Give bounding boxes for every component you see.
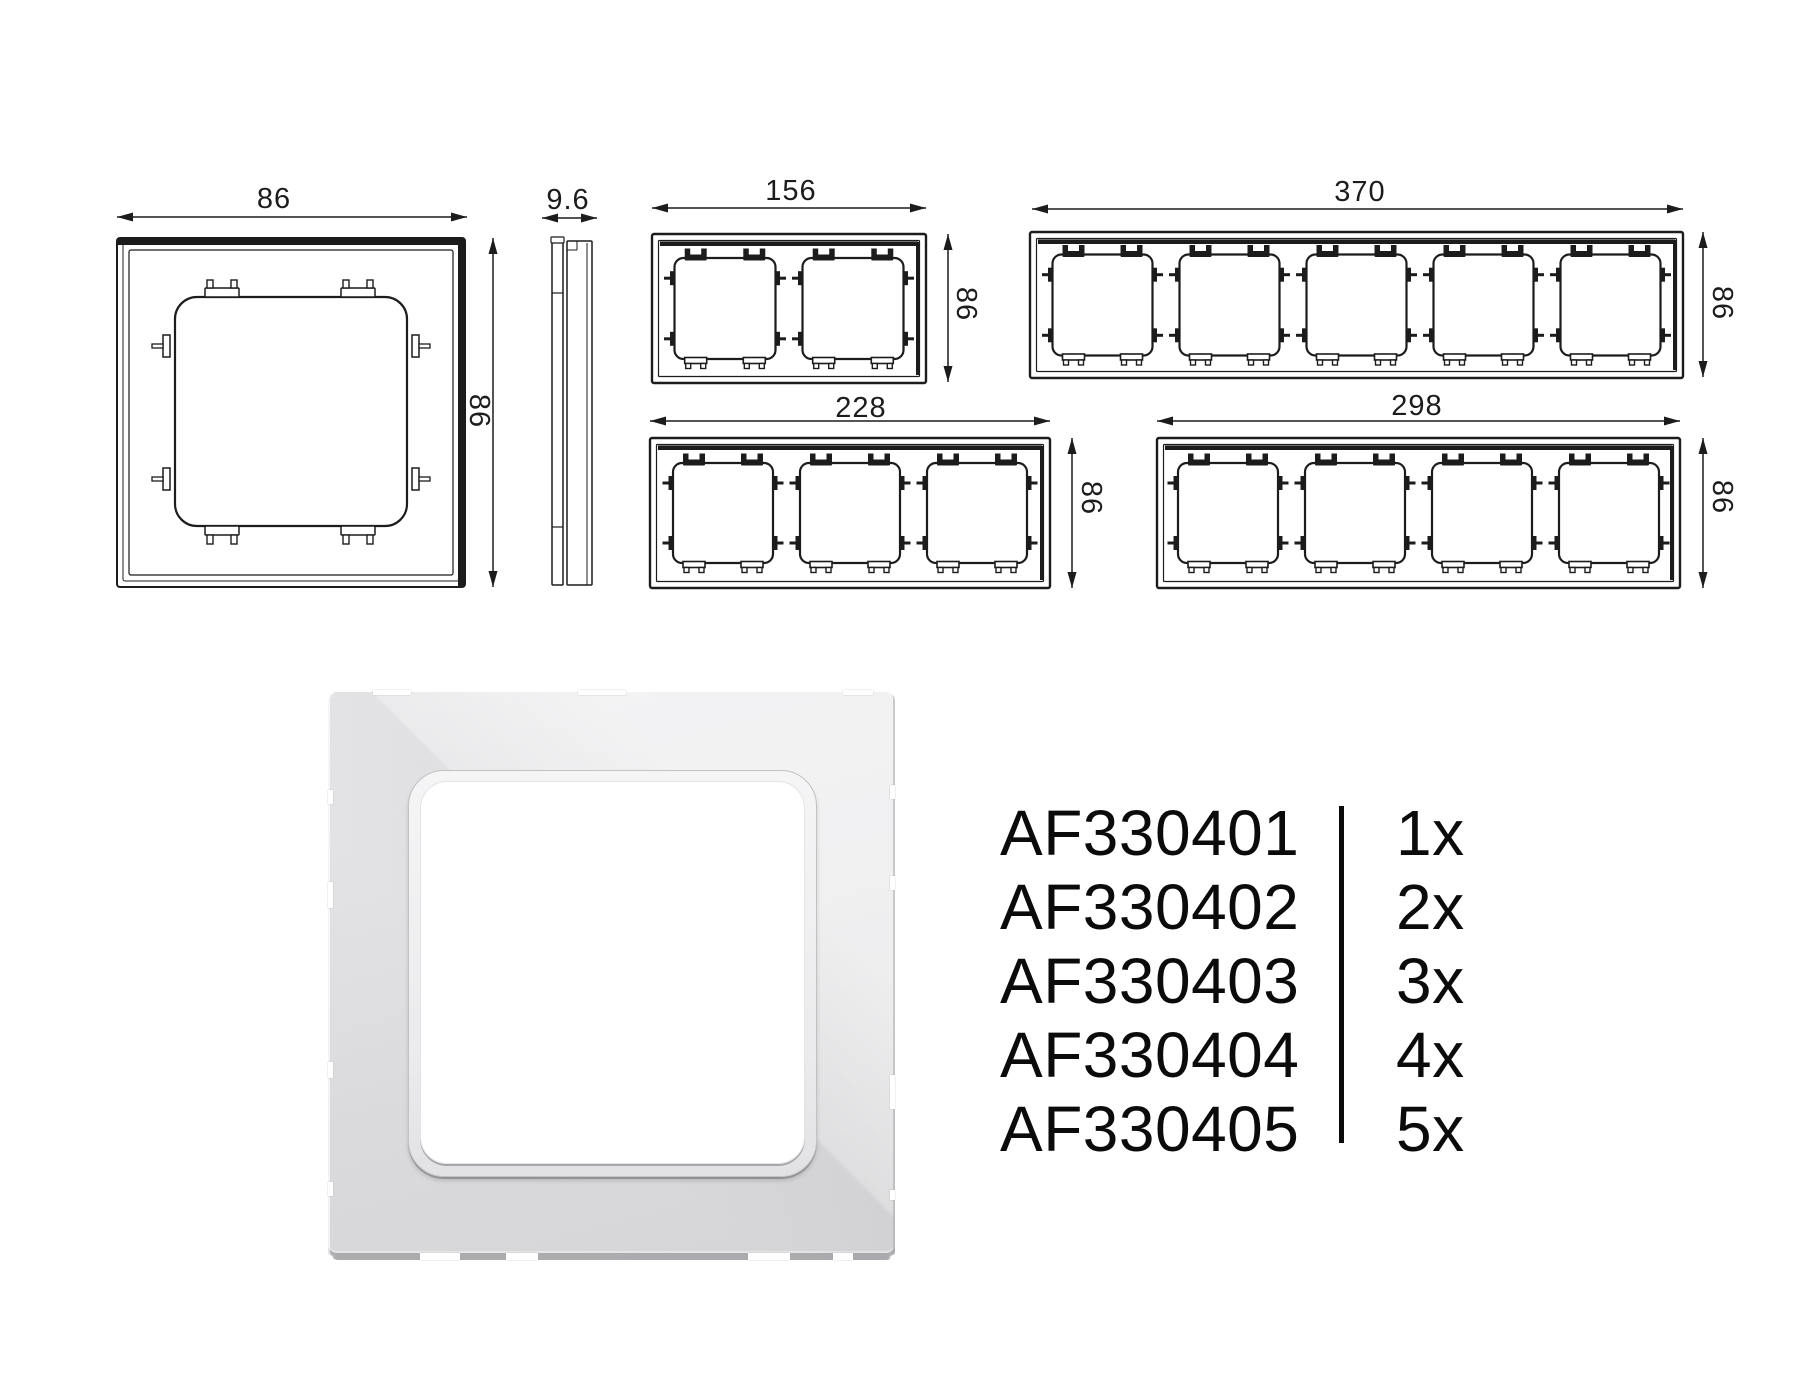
- product-code: AF330403: [1000, 944, 1299, 1018]
- frame-opening: [420, 781, 805, 1164]
- technical-drawings: 86869.615686370862288629886: [0, 0, 1800, 660]
- dimension-label: 156: [765, 175, 816, 207]
- corner-glint: [326, 688, 333, 695]
- frame-2gang-drawing: 15686: [652, 175, 982, 383]
- page: 86869.615686370862288629886 AF330401 AF3…: [0, 0, 1800, 1400]
- list-divider: [1339, 806, 1344, 1143]
- side-profile-drawing: 9.6: [542, 184, 597, 585]
- opening-ring: [408, 770, 817, 1177]
- edge-notch: [843, 690, 873, 695]
- edge-notch: [890, 1075, 895, 1109]
- edge-notch: [328, 1182, 333, 1196]
- dimension-label: 86: [1075, 481, 1107, 515]
- gang-count: 2x: [1396, 870, 1465, 944]
- gang-count: 3x: [1396, 944, 1465, 1018]
- corner-glint: [890, 1255, 897, 1262]
- dimension-label: 86: [463, 394, 495, 428]
- corner-glint: [326, 1255, 333, 1262]
- corner-glint: [890, 688, 897, 695]
- edge-notch: [328, 790, 333, 804]
- product-code: AF330405: [1000, 1092, 1299, 1166]
- gang-count: 1x: [1396, 796, 1465, 870]
- dimension-label: 86: [950, 287, 982, 321]
- gang-count-list: 1x 2x 3x 4x 5x: [1396, 796, 1465, 1166]
- frame-5gang-drawing: 37086: [1030, 176, 1738, 378]
- edge-notch: [373, 690, 411, 695]
- gang-count: 4x: [1396, 1018, 1465, 1092]
- dimension-label: 9.6: [546, 184, 589, 216]
- edge-notch: [833, 1253, 853, 1260]
- edge-notch: [890, 785, 895, 799]
- edge-notch: [328, 882, 333, 908]
- gang-count: 5x: [1396, 1092, 1465, 1166]
- dimension-label: 86: [257, 183, 291, 215]
- edge-notch: [890, 1190, 895, 1200]
- edge-notch: [420, 1253, 460, 1260]
- edge-notch: [328, 1062, 333, 1078]
- edge-notch: [890, 876, 895, 890]
- product-code-list: AF330401 AF330402 AF330403 AF330404 AF33…: [1000, 796, 1299, 1166]
- edge-notch: [506, 1253, 538, 1260]
- frame-3gang-drawing: 22886: [650, 392, 1107, 588]
- frame-4gang-drawing: 29886: [1157, 390, 1738, 588]
- edge-notch: [578, 690, 626, 695]
- dimension-label: 228: [835, 392, 886, 424]
- dimension-label: 86: [1706, 286, 1738, 320]
- single-frame-drawing: 8686: [117, 183, 498, 587]
- product-code: AF330402: [1000, 870, 1299, 944]
- dimension-label: 298: [1391, 390, 1442, 422]
- product-code: AF330404: [1000, 1018, 1299, 1092]
- product-code: AF330401: [1000, 796, 1299, 870]
- edge-notch: [748, 1253, 790, 1260]
- product-render: [328, 690, 895, 1260]
- dimension-label: 86: [1706, 480, 1738, 514]
- dimension-label: 370: [1334, 176, 1385, 208]
